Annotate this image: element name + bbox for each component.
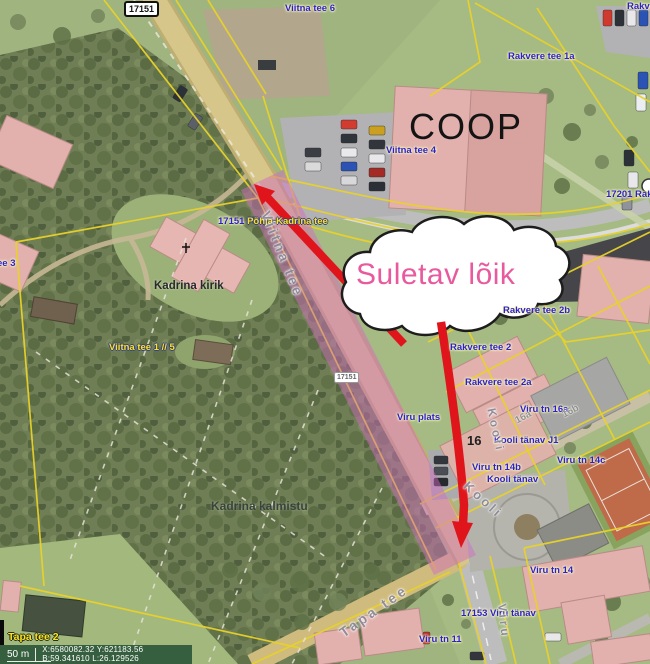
map-corner-tick bbox=[0, 620, 4, 645]
coordinate-bl: B:59.341610 L:26.129526 bbox=[42, 655, 143, 664]
road-shield-icon bbox=[642, 179, 650, 193]
map-viewport[interactable]: 17151 17151 Viitna tee 6 Rakve Rakvere t… bbox=[0, 0, 650, 664]
scale-bar-line bbox=[7, 661, 51, 662]
coordinate-readout: X:6580082.32 Y:621183.56 B:59.341610 L:2… bbox=[42, 646, 143, 663]
road-shield-17151: 17151 bbox=[124, 1, 159, 17]
road-badge-17151: 17151 bbox=[334, 372, 359, 383]
coop-store-label: COOP bbox=[409, 106, 523, 148]
closed-section-annotation: Suletav lõik bbox=[356, 258, 515, 292]
scale-label: 50 m bbox=[0, 649, 35, 660]
status-divider-icon bbox=[35, 648, 36, 661]
aerial-map bbox=[0, 0, 650, 664]
